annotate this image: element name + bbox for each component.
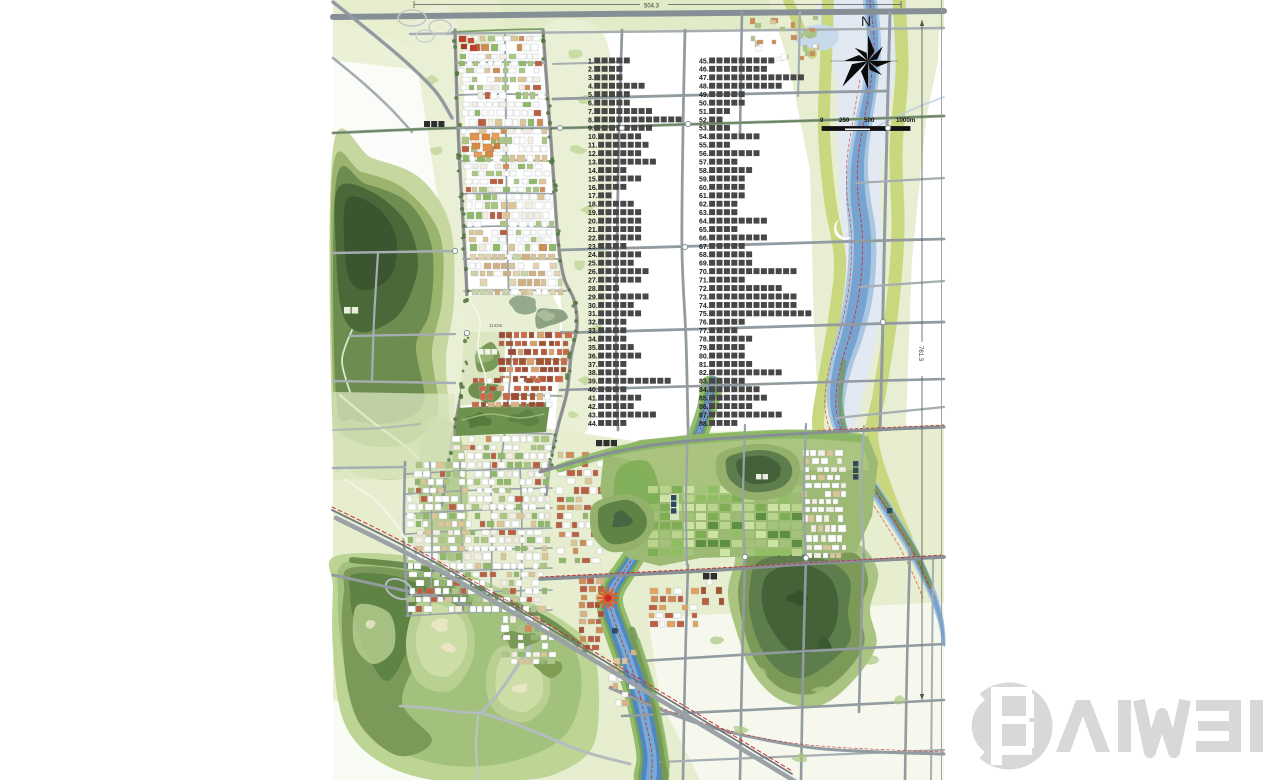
svg-text:19.: 19. (588, 210, 598, 217)
svg-text:8.: 8. (588, 117, 594, 124)
svg-text:79.: 79. (699, 345, 709, 352)
svg-text:62.: 62. (699, 202, 709, 209)
svg-text:74.: 74. (699, 303, 709, 310)
svg-text:85.: 85. (699, 396, 709, 403)
svg-text:56.: 56. (699, 151, 709, 158)
svg-text:76.: 76. (699, 320, 709, 327)
svg-text:35.: 35. (588, 345, 598, 352)
svg-text:49.: 49. (699, 92, 709, 99)
svg-text:22.: 22. (588, 235, 598, 242)
svg-text:34.: 34. (588, 337, 598, 344)
svg-text:71.: 71. (699, 278, 709, 285)
svg-text:78.: 78. (699, 337, 709, 344)
svg-text:39.: 39. (588, 379, 598, 386)
svg-text:51.: 51. (699, 109, 709, 116)
svg-text:0: 0 (820, 117, 824, 124)
svg-text:29.: 29. (588, 294, 598, 301)
svg-text:82.: 82. (699, 370, 709, 377)
svg-text:14.: 14. (588, 168, 598, 175)
svg-text:761.3: 761.3 (917, 346, 923, 362)
svg-text:44.: 44. (588, 421, 598, 428)
svg-text:15.: 15. (588, 176, 598, 183)
svg-text:9.: 9. (588, 126, 594, 133)
svg-text:504.3: 504.3 (644, 4, 660, 10)
svg-text:32.: 32. (588, 320, 598, 327)
svg-text:88.: 88. (699, 421, 709, 428)
svg-text:47.: 47. (699, 75, 709, 82)
svg-text:250: 250 (839, 117, 850, 124)
svg-text:33.: 33. (588, 328, 598, 335)
svg-text:25.: 25. (588, 261, 598, 268)
svg-text:65.: 65. (699, 227, 709, 234)
svg-text:54.: 54. (699, 134, 709, 141)
svg-text:61.: 61. (699, 193, 709, 200)
svg-text:69.: 69. (699, 261, 709, 268)
svg-text:21.: 21. (588, 227, 598, 234)
svg-text:83.: 83. (699, 379, 709, 386)
svg-text:75.: 75. (699, 311, 709, 318)
svg-text:17.: 17. (588, 193, 598, 200)
svg-text:41.: 41. (588, 396, 598, 403)
svg-text:40.: 40. (588, 387, 598, 394)
svg-text:80.: 80. (699, 353, 709, 360)
svg-text:26.: 26. (588, 269, 598, 276)
svg-text:77.: 77. (699, 328, 709, 335)
svg-text:59.: 59. (699, 176, 709, 183)
svg-text:1.: 1. (588, 58, 594, 65)
svg-text:4.: 4. (588, 84, 594, 91)
svg-text:63.: 63. (699, 210, 709, 217)
svg-text:16.: 16. (588, 185, 598, 192)
svg-text:57.: 57. (699, 160, 709, 167)
svg-text:3.: 3. (588, 75, 594, 82)
svg-text:2.: 2. (588, 67, 594, 74)
svg-text:68.: 68. (699, 252, 709, 259)
svg-text:48.: 48. (699, 84, 709, 91)
svg-text:500: 500 (864, 117, 875, 124)
svg-text:64.: 64. (699, 219, 709, 226)
svg-text:72.: 72. (699, 286, 709, 293)
svg-text:37.: 37. (588, 362, 598, 369)
svg-text:11.: 11. (588, 143, 597, 150)
svg-text:66.: 66. (699, 235, 709, 242)
svg-text:43.: 43. (588, 412, 598, 419)
svg-text:81.: 81. (699, 362, 709, 369)
svg-text:31.: 31. (588, 311, 598, 318)
svg-text:50.: 50. (699, 101, 709, 108)
svg-text:84.: 84. (699, 387, 709, 394)
svg-text:52.: 52. (699, 117, 709, 124)
svg-text:12.: 12. (588, 151, 598, 158)
svg-text:30.: 30. (588, 303, 598, 310)
svg-text:36.: 36. (588, 353, 598, 360)
svg-text:24.: 24. (588, 252, 598, 259)
svg-text:58.: 58. (699, 168, 709, 175)
svg-text:27.: 27. (588, 278, 598, 285)
svg-text:55.: 55. (699, 143, 709, 150)
svg-text:N: N (861, 13, 871, 29)
svg-text:1000m: 1000m (896, 117, 916, 124)
svg-text:5.: 5. (588, 92, 594, 99)
svg-text:42.: 42. (588, 404, 598, 411)
svg-text:7.: 7. (588, 109, 594, 116)
svg-text:46.: 46. (699, 67, 709, 74)
svg-text:67.: 67. (699, 244, 709, 251)
svg-text:18.: 18. (588, 202, 598, 209)
svg-text:10.: 10. (588, 134, 598, 141)
svg-text:87.: 87. (699, 412, 709, 419)
svg-text:60.: 60. (699, 185, 709, 192)
svg-text:1143m: 1143m (489, 323, 503, 328)
svg-text:45.: 45. (699, 58, 709, 65)
svg-text:6.: 6. (588, 101, 594, 108)
svg-text:38.: 38. (588, 370, 598, 377)
svg-text:70.: 70. (699, 269, 709, 276)
svg-text:53.: 53. (699, 126, 709, 133)
svg-text:73.: 73. (699, 294, 709, 301)
svg-text:20.: 20. (588, 219, 598, 226)
svg-text:13.: 13. (588, 160, 598, 167)
svg-text:28.: 28. (588, 286, 598, 293)
svg-text:86.: 86. (699, 404, 709, 411)
svg-text:23.: 23. (588, 244, 598, 251)
